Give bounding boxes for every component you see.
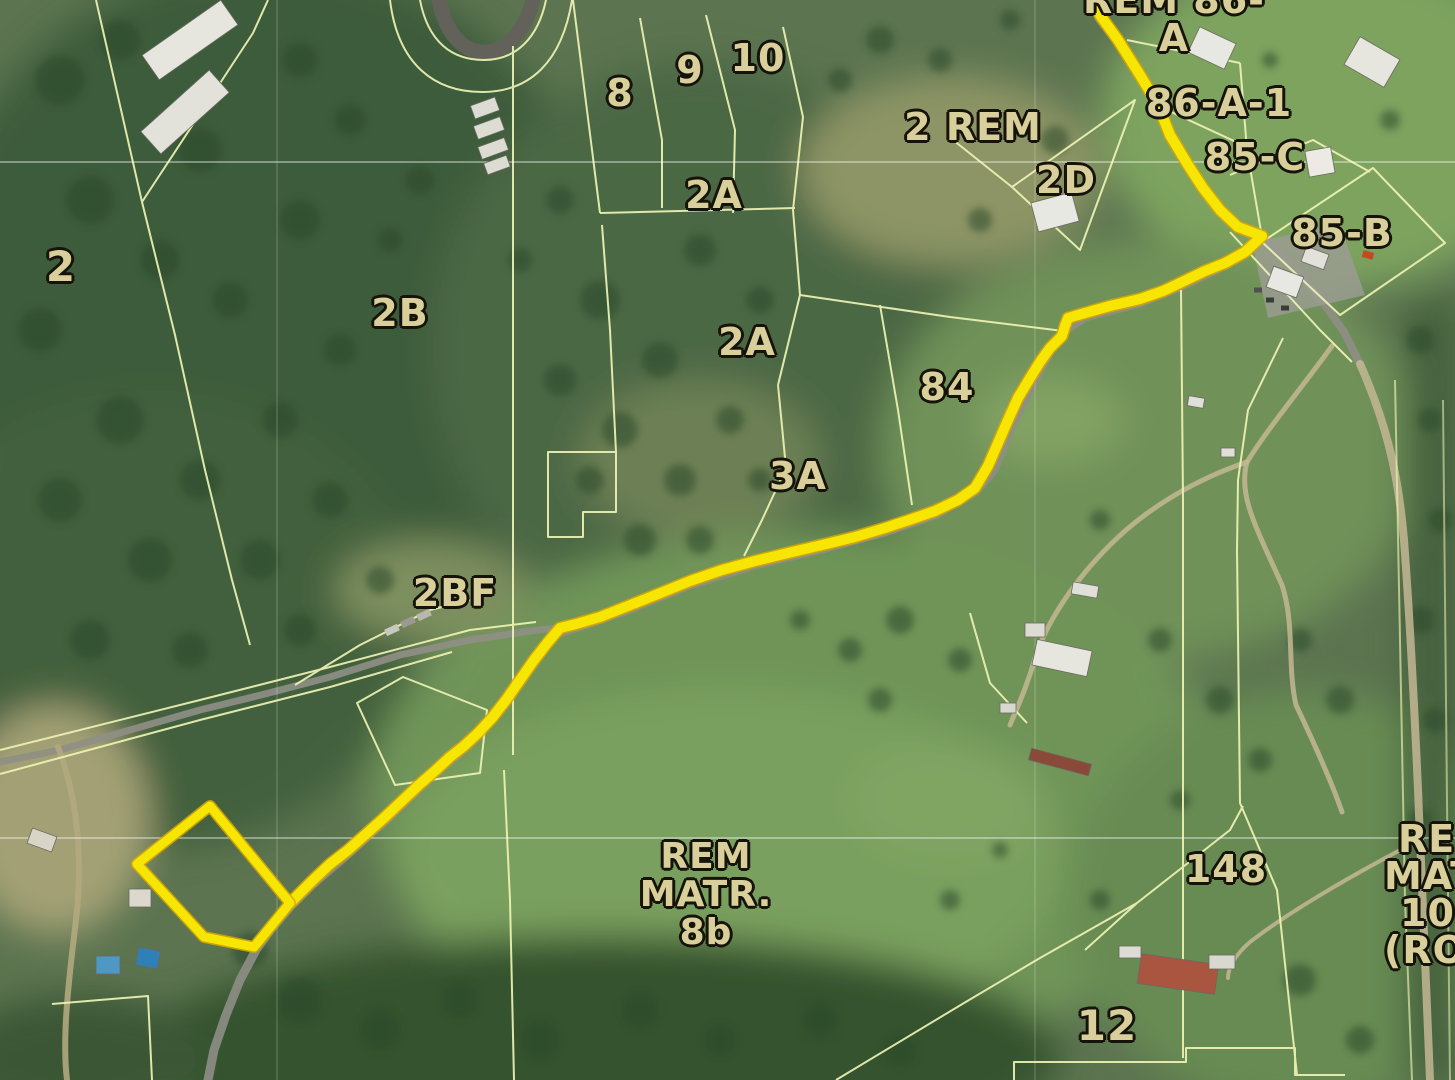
parcel-label-2b: 2B (371, 292, 428, 334)
parcel-label-2a-upper: 2A (685, 174, 743, 216)
parcel-label-84: 84 (920, 366, 975, 408)
parcel-label-148: 148 (1185, 848, 1267, 890)
parcel-label-8: 8 (606, 72, 633, 114)
parcel-label-rem-86-a: REM 86- A (1083, 0, 1265, 57)
parcel-label-85-b: 85-B (1291, 212, 1393, 254)
parcel-label-2a-mid: 2A (718, 321, 776, 363)
parcel-label-right-edge-rem-matr-row: REM MATR. 10 (ROW (1384, 821, 1455, 969)
parcel-label-2bf: 2BF (413, 572, 497, 614)
aerial-cadastral-map: REM 86- A 86-A-1 85-C 85-B 2 REM 2D 8 9 … (0, 0, 1455, 1080)
parcel-label-85-c: 85-C (1205, 136, 1306, 178)
parcel-label-rem-matr-8b: REM MATR. 8b (640, 838, 773, 952)
parcel-label-10: 10 (731, 37, 786, 79)
parcel-label-2d: 2D (1036, 159, 1096, 201)
parcel-label-2: 2 (46, 246, 76, 288)
parcel-label-86-a-1: 86-A-1 (1146, 82, 1292, 124)
parcel-label-12: 12 (1077, 1005, 1137, 1047)
parcel-label-3a: 3A (769, 455, 827, 497)
parcel-label-2-rem: 2 REM (904, 106, 1042, 148)
parcel-label-9: 9 (676, 49, 703, 91)
